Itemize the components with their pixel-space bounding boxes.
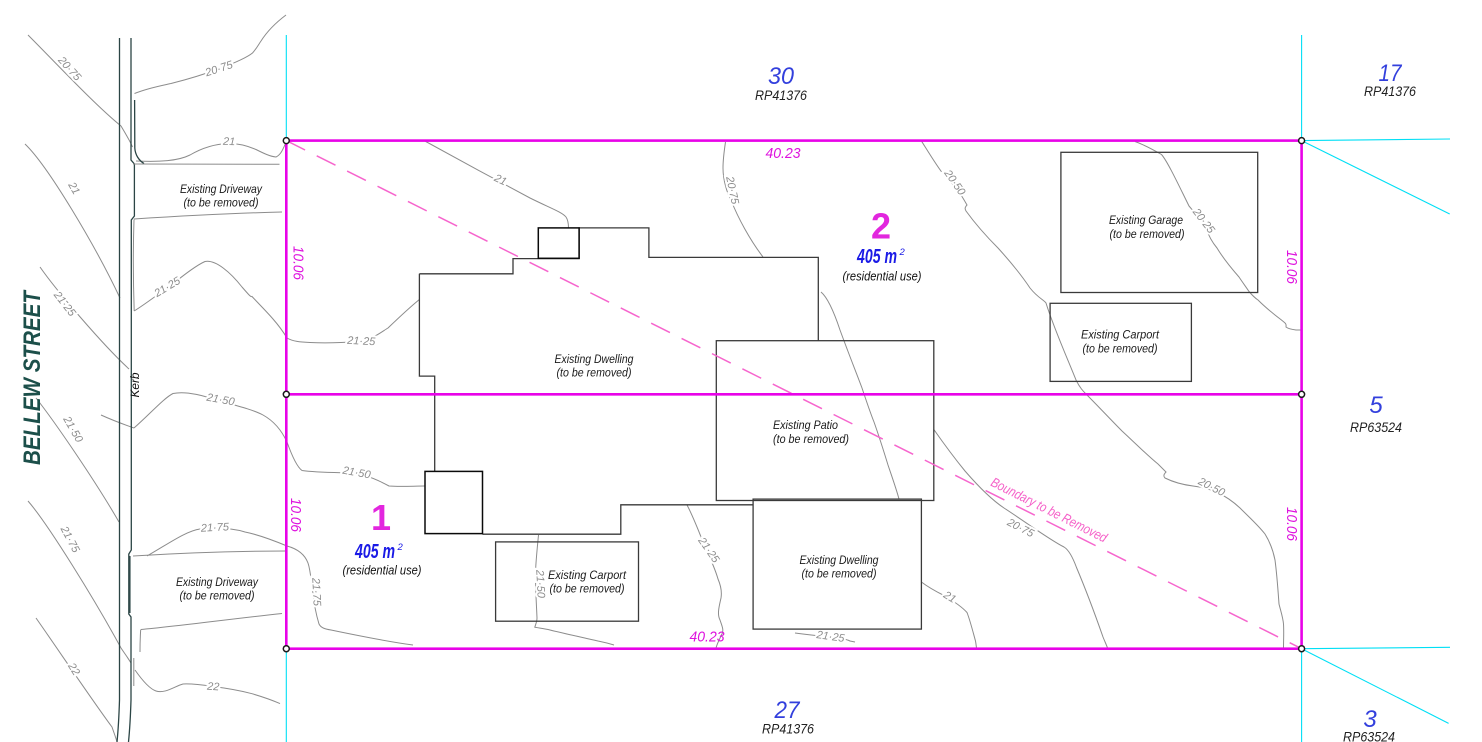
svg-text:405 m: 405 m (354, 541, 395, 563)
svg-text:10.06: 10.06 (1283, 250, 1300, 285)
svg-text:2: 2 (397, 542, 404, 553)
svg-text:RP41376: RP41376 (762, 722, 814, 737)
svg-text:40.23: 40.23 (766, 145, 802, 162)
svg-text:2: 2 (871, 206, 891, 247)
svg-text:21·75: 21·75 (309, 576, 323, 607)
svg-text:Existing Dwelling: Existing Dwelling (555, 352, 634, 366)
svg-text:(to be removed): (to be removed) (557, 366, 632, 380)
svg-text:(residential use): (residential use) (343, 563, 422, 578)
svg-text:405 m: 405 m (856, 246, 897, 268)
svg-text:21: 21 (222, 136, 236, 148)
svg-text:Existing Driveway: Existing Driveway (176, 575, 259, 589)
svg-text:Existing Dwelling: Existing Dwelling (800, 553, 879, 567)
svg-text:RP41376: RP41376 (755, 88, 807, 103)
svg-text:1: 1 (371, 497, 391, 538)
svg-text:Existing Garage: Existing Garage (1109, 213, 1183, 227)
svg-text:22: 22 (206, 681, 220, 694)
svg-text:30: 30 (768, 63, 795, 90)
svg-text:(to be removed): (to be removed) (180, 589, 255, 603)
svg-text:21·50: 21·50 (533, 568, 547, 599)
svg-text:RP63524: RP63524 (1343, 730, 1395, 742)
svg-text:40.23: 40.23 (690, 629, 726, 646)
svg-text:21·25: 21·25 (346, 335, 377, 349)
svg-text:(to be removed): (to be removed) (1083, 342, 1158, 356)
svg-text:10.06: 10.06 (287, 498, 304, 533)
svg-text:17: 17 (1379, 60, 1403, 87)
svg-text:(to be removed): (to be removed) (184, 196, 259, 210)
svg-text:5: 5 (1369, 392, 1383, 419)
svg-text:Kerb: Kerb (130, 372, 142, 398)
svg-text:Existing Carport: Existing Carport (1081, 328, 1160, 342)
svg-text:BELLEW STREET: BELLEW STREET (19, 289, 46, 465)
svg-text:(to be removed): (to be removed) (550, 582, 625, 596)
svg-text:RP41376: RP41376 (1364, 84, 1416, 99)
svg-text:(residential use): (residential use) (843, 269, 922, 284)
svg-text:(to be removed): (to be removed) (802, 567, 877, 581)
svg-text:27: 27 (774, 697, 801, 724)
svg-text:10.06: 10.06 (1283, 507, 1300, 542)
svg-text:Existing Carport: Existing Carport (548, 568, 627, 582)
svg-text:RP63524: RP63524 (1350, 420, 1402, 435)
svg-text:10.06: 10.06 (290, 246, 307, 281)
svg-text:21·75: 21·75 (199, 521, 230, 535)
svg-text:2: 2 (899, 247, 906, 258)
svg-text:(to be removed): (to be removed) (773, 432, 849, 446)
svg-text:Existing Driveway: Existing Driveway (180, 182, 263, 196)
svg-text:Existing Patio: Existing Patio (773, 418, 838, 432)
svg-text:(to be removed): (to be removed) (1110, 227, 1185, 241)
